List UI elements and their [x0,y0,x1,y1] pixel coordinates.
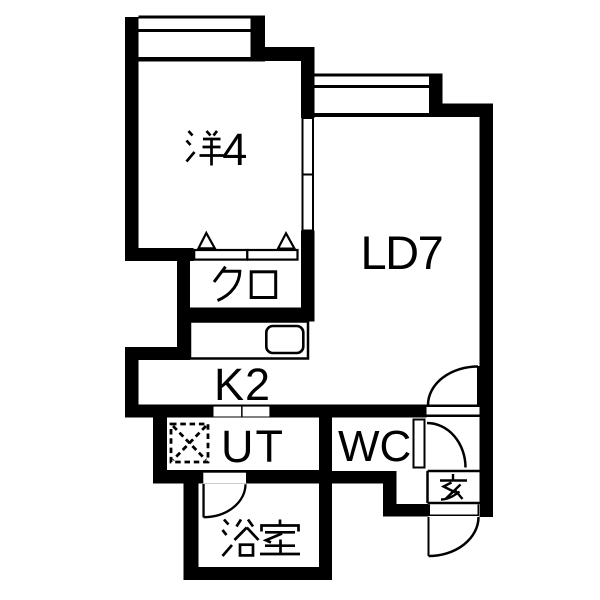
svg-text:K2: K2 [214,359,271,410]
svg-text:UT: UT [221,421,285,472]
svg-text:4: 4 [222,124,247,175]
svg-text:WC: WC [338,422,411,471]
svg-text:LD7: LD7 [361,226,443,279]
